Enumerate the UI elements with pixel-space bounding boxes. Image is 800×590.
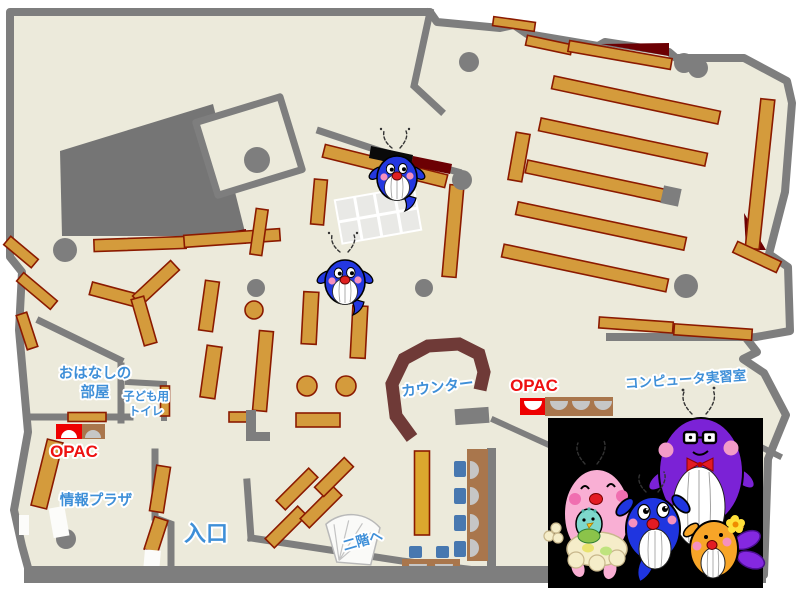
opac-station-left [56,424,105,439]
label-kids-toilet: 子ども用 [123,390,169,403]
opac-station-right [520,397,613,416]
label-entrance: 入口 [184,521,228,546]
floor-map-svg: おはなしの 部屋 子ども用 トイレ OPAC OPAC 情報プラザ 入口 カウン… [0,0,800,590]
label-storytelling-room: おはなしの [59,365,132,382]
label-kids-toilet: トイレ [129,405,164,418]
label-info-plaza: 情報プラザ [60,491,133,509]
label-opac-right: OPAC [510,376,558,395]
library-floor-map: おはなしの 部屋 子ども用 トイレ OPAC OPAC 情報プラザ 入口 カウン… [0,0,800,590]
teal-baby-icon [576,507,602,543]
label-storytelling-room: 部屋 [81,383,110,401]
label-opac-left: OPAC [50,442,98,461]
